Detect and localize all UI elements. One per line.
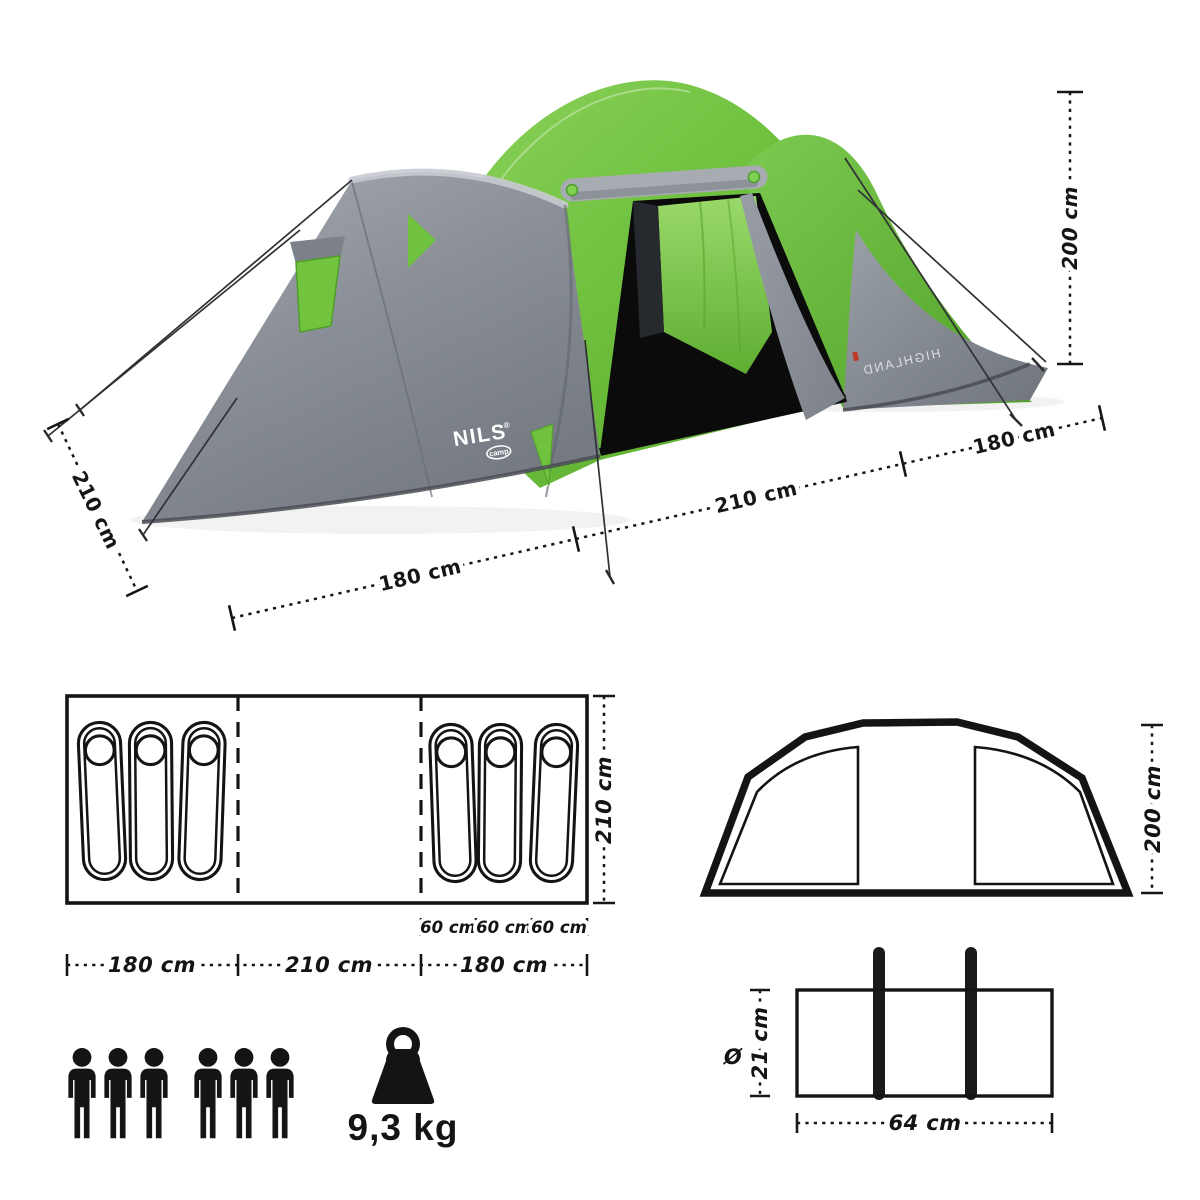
floor-plan-dim-depth-label: 210 cm <box>592 756 616 844</box>
sleeping-bag-icon <box>530 724 579 883</box>
bed-width-label-3: 60 cm <box>531 918 587 937</box>
weight-value: 9,3 kg <box>348 1107 459 1148</box>
floor-plan-dim-depth: 210 cm <box>592 696 616 903</box>
floor-plan: 210 cm 60 cm 60 cm 60 cm 180 cm 210 cm 1… <box>67 696 616 977</box>
sleeping-bag-icon <box>478 724 522 882</box>
weight-icon <box>372 1027 434 1104</box>
bag-dim-length: 64 cm <box>797 1111 1052 1135</box>
elevation-dim-height: 200 cm <box>1141 725 1165 893</box>
sleeping-bag-icon <box>429 724 477 883</box>
photo-dim-height: 200 cm <box>1057 92 1083 364</box>
capacity-icons <box>68 1048 293 1138</box>
photo-dim-width-left-label: 180 cm <box>376 554 463 596</box>
photo-dim-depth-left: 210 cm <box>47 419 148 596</box>
sheet-svg: HIGHLAND NILS ® <box>0 0 1200 1200</box>
section-label-1: 180 cm <box>108 953 196 977</box>
front-elevation: 200 cm <box>705 722 1165 893</box>
sleeping-bags-right <box>429 724 578 883</box>
bed-width-label-1: 60 cm <box>420 918 476 937</box>
sleeping-bag-icon <box>78 722 127 881</box>
photo-dim-depth-left-label: 210 cm <box>67 467 125 553</box>
carry-bag: Ø 21 cm 64 cm <box>723 947 1052 1135</box>
door-tie-left <box>567 185 578 196</box>
product-dimension-sheet: HIGHLAND NILS ® <box>0 0 1200 1200</box>
section-label-3: 180 cm <box>460 953 548 977</box>
sleeping-bags-left <box>78 722 226 881</box>
elevation-dim-height-label: 200 cm <box>1141 765 1165 853</box>
person-icon <box>68 1048 95 1138</box>
bag-strap-right-front <box>967 992 975 1095</box>
weight-spec: 9,3 kg <box>348 1027 459 1148</box>
floor-plan-dim-beds: 60 cm 60 cm 60 cm <box>420 918 587 937</box>
front-peg <box>546 486 548 497</box>
photo-dim-width-middle-label: 210 cm <box>712 476 799 518</box>
door-tie-right <box>749 172 760 183</box>
sleeping-bag-icon <box>178 722 226 881</box>
bag-dim-length-label: 64 cm <box>889 1111 962 1135</box>
person-icon <box>266 1048 293 1138</box>
photo-dim-height-label: 200 cm <box>1058 186 1082 270</box>
tent-photo: HIGHLAND NILS ® <box>44 80 1065 584</box>
bed-width-label-2: 60 cm <box>476 918 532 937</box>
person-icon <box>104 1048 131 1138</box>
bag-dim-diameter-label: 21 cm <box>748 1007 772 1080</box>
person-icon <box>230 1048 257 1138</box>
bag-strap-left-front <box>875 992 883 1095</box>
section-label-2: 210 cm <box>285 953 373 977</box>
photo-dim-width-right-label: 180 cm <box>970 417 1057 459</box>
bag-diameter-symbol: Ø <box>723 1045 743 1069</box>
person-icon <box>194 1048 221 1138</box>
person-icon <box>140 1048 167 1138</box>
sleeping-bag-icon <box>129 722 173 880</box>
floor-plan-dim-sections: 180 cm 210 cm 180 cm <box>67 953 587 977</box>
bag-dim-diameter: Ø 21 cm <box>723 990 772 1096</box>
bag-outline <box>797 990 1052 1096</box>
